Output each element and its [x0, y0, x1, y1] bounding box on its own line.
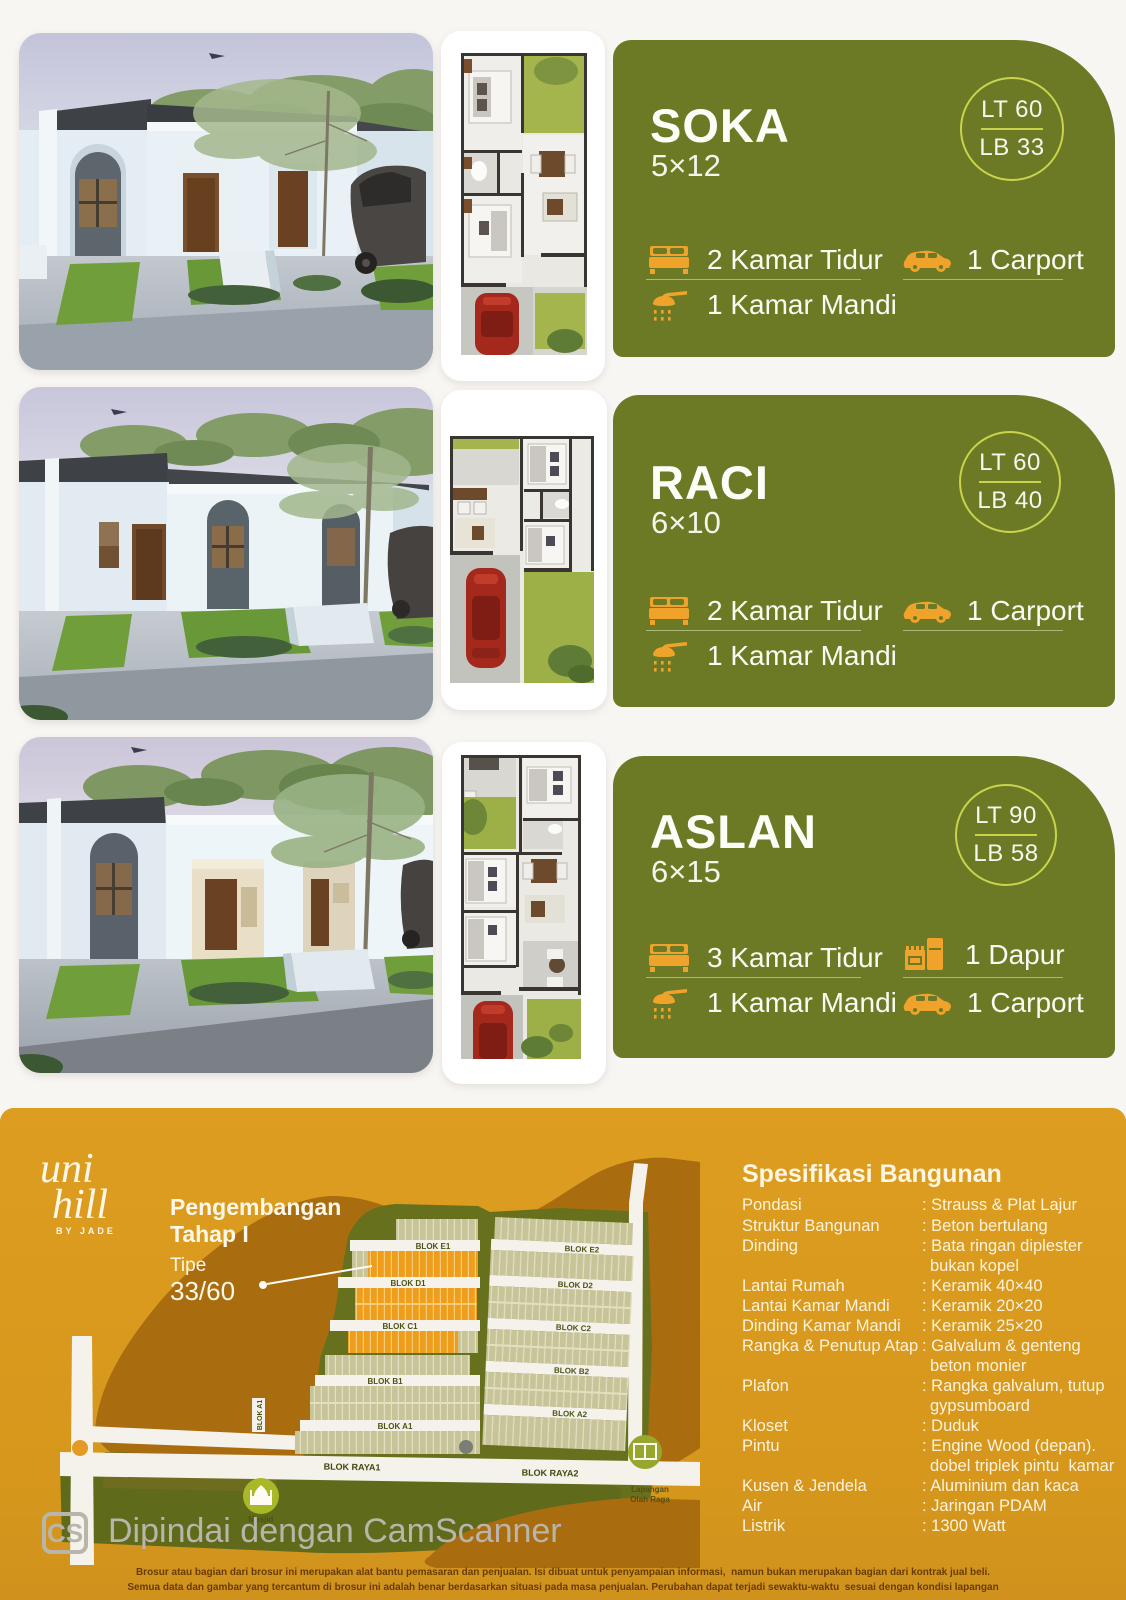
svg-text:BLOK A1: BLOK A1	[257, 1400, 264, 1431]
svg-text:BLOK B2: BLOK B2	[554, 1366, 590, 1377]
svg-text:BY JADE: BY JADE	[56, 1226, 116, 1236]
svg-text:hill: hill	[52, 1182, 108, 1228]
svg-text:BLOK RAYA2: BLOK RAYA2	[522, 1468, 579, 1479]
svg-text:BLOK A2: BLOK A2	[552, 1409, 588, 1420]
svg-text:BLOK A1: BLOK A1	[378, 1422, 413, 1431]
svg-text:BLOK E2: BLOK E2	[564, 1244, 600, 1255]
svg-text:Olah Raga: Olah Raga	[630, 1495, 670, 1504]
svg-text:Lapangan: Lapangan	[631, 1485, 669, 1494]
svg-text:BLOK E1: BLOK E1	[416, 1242, 451, 1251]
svg-text:BLOK B1: BLOK B1	[367, 1377, 403, 1386]
svg-text:BLOK D1: BLOK D1	[390, 1279, 426, 1288]
svg-text:BLOK RAYA1: BLOK RAYA1	[324, 1462, 381, 1473]
svg-text:BLOK C1: BLOK C1	[382, 1322, 418, 1331]
svg-text:BLOK C2: BLOK C2	[556, 1323, 592, 1334]
svg-text:BLOK D2: BLOK D2	[558, 1280, 594, 1291]
